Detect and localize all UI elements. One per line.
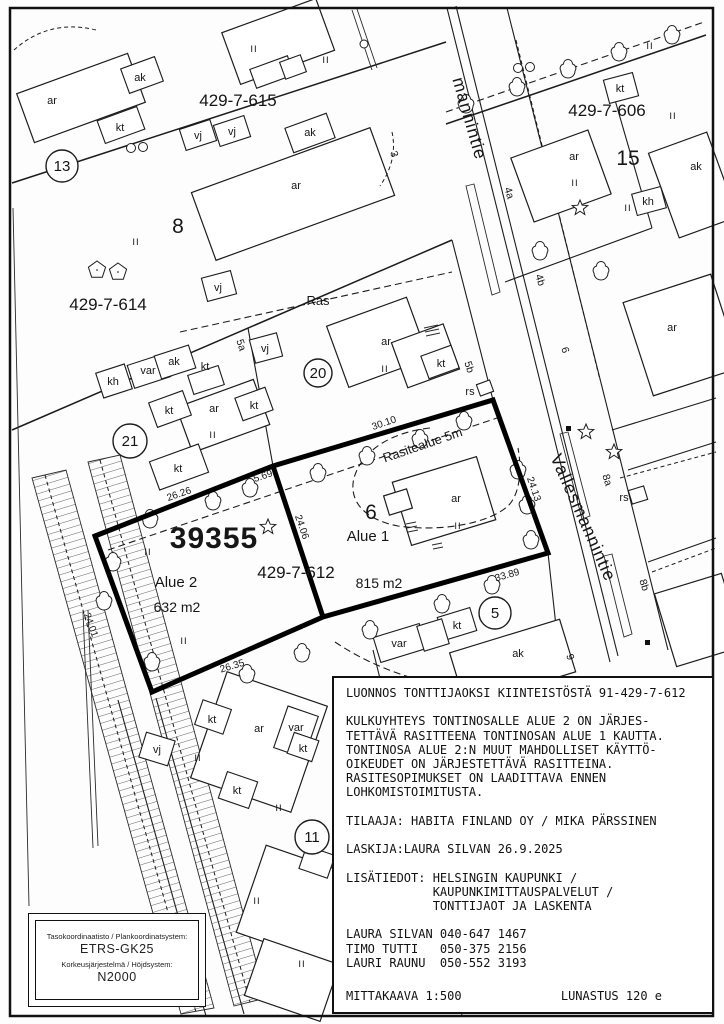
scale-label: MITTAKAAVA 1:500: [346, 989, 462, 1003]
plot-number-8: 8: [172, 215, 184, 238]
floors-label: II: [253, 896, 260, 907]
code-kt: kt: [250, 400, 259, 412]
plot-number-15: 15: [616, 147, 639, 170]
alue1-label: Alue 1: [347, 528, 390, 545]
floors-label: II: [381, 364, 388, 375]
code-ar: ar: [291, 180, 301, 192]
parcel-id-606: 429-7-606: [568, 101, 646, 120]
code-ar: ar: [451, 493, 461, 505]
code-rs: rs: [465, 386, 475, 398]
code-kt: kt: [616, 83, 625, 95]
addr-5b: 5b: [461, 360, 476, 375]
code-ak: ak: [690, 161, 702, 173]
circled-21: 21: [122, 433, 139, 450]
floors-label: II: [180, 636, 187, 647]
code-ak: ak: [512, 648, 524, 660]
code-ak: ak: [168, 356, 180, 368]
code-vj: vj: [214, 282, 222, 294]
circled-5: 5: [491, 605, 499, 622]
addr-4b: 4b: [532, 273, 547, 288]
floors-label: II: [646, 41, 653, 52]
code-kt: kt: [174, 463, 183, 475]
floors-label: II: [275, 803, 282, 814]
code-kt: kt: [437, 358, 446, 370]
code-kt: kt: [201, 361, 210, 373]
code-kh: kh: [642, 196, 654, 208]
parcel-id-612: 429-7-612: [257, 563, 335, 582]
addr-8a: 8a: [599, 473, 614, 488]
floors-label: II: [571, 178, 578, 189]
coordinate-system-box: Tasokoordinaatisto / Plankoordinatsystem…: [28, 913, 206, 1007]
circled-11: 11: [304, 829, 320, 846]
code-vj: vj: [194, 130, 202, 142]
code-kh: kh: [107, 376, 119, 388]
plane-coordinate-value: ETRS-GK25: [80, 942, 154, 956]
code-ak: ak: [304, 127, 316, 139]
floors-label: II: [298, 959, 305, 970]
height-system-value: N2000: [97, 970, 136, 984]
addr-6: 6: [558, 345, 571, 354]
plane-coordinate-label: Tasokoordinaatisto / Plankoordinatsystem…: [47, 932, 188, 941]
floors-label: II: [322, 55, 329, 66]
floors-label: II: [250, 44, 257, 55]
alue2-label: Alue 2: [155, 574, 198, 591]
floors-label: II: [132, 237, 139, 248]
code-var: var: [140, 365, 156, 377]
code-ar: ar: [667, 322, 677, 334]
code-kt: kt: [299, 743, 308, 755]
code-var: var: [288, 722, 304, 734]
addr-5a: 5a: [233, 338, 248, 353]
code-vj: vj: [261, 343, 269, 355]
code-ar: ar: [381, 336, 391, 348]
floors-label: II: [454, 521, 461, 532]
addr-8b: 8b: [636, 578, 651, 593]
code-kt: kt: [453, 620, 462, 632]
code-rs: rs: [619, 492, 629, 504]
code-ar: ar: [47, 95, 57, 107]
code-ar: ar: [569, 151, 579, 163]
cadastral-map-page: 429-7-615 429-7-614 429-7-606 429-7-612 …: [0, 0, 724, 1024]
plot-number-6: 6: [365, 501, 377, 524]
redemption-label: LUNASTUS 120 e: [561, 989, 662, 1003]
coordinate-system-inner: Tasokoordinaatisto / Plankoordinatsystem…: [35, 920, 199, 1000]
floors-label: II: [144, 547, 151, 558]
floors-label: II: [624, 203, 631, 214]
addr-3: 3: [387, 149, 400, 158]
code-ar: ar: [254, 723, 264, 735]
code-kt: kt: [165, 405, 174, 417]
height-system-label: Korkeusjärjestelmä / Höjdsystem:: [61, 960, 172, 969]
notes-text: LUONNOS TONTTIJAOKSI KIINTEISTÖSTÄ 91-42…: [334, 678, 712, 970]
notes-box: LUONNOS TONTTIJAOKSI KIINTEISTÖSTÄ 91-42…: [332, 676, 714, 1014]
floors-label: II: [194, 753, 201, 764]
alue2-area: 632 m2: [154, 599, 201, 615]
street-name-partial: mannintie: [448, 75, 491, 162]
alue1-area: 815 m2: [356, 575, 403, 591]
street-name-vallesmannintie: Vallesmannintie: [546, 451, 620, 585]
code-ak: ak: [134, 72, 146, 84]
code-ar: ar: [209, 403, 219, 415]
code-var: var: [391, 638, 407, 650]
code-vj: vj: [153, 744, 161, 756]
ras-label: Ras: [306, 293, 330, 308]
scale-row: MITTAKAAVA 1:500 LUNASTUS 120 e: [346, 989, 662, 1003]
code-kt: kt: [208, 714, 217, 726]
circled-13: 13: [54, 158, 71, 175]
floors-label: II: [209, 430, 216, 441]
parcel-id-614: 429-7-614: [69, 295, 147, 314]
code-kt: kt: [116, 122, 125, 134]
code-kt: kt: [233, 785, 242, 797]
circled-20: 20: [310, 365, 327, 382]
new-plot-number: 39355: [170, 522, 258, 555]
floors-label: II: [669, 111, 676, 122]
parcel-id-615: 429-7-615: [199, 91, 277, 110]
code-vj: vj: [228, 126, 236, 138]
